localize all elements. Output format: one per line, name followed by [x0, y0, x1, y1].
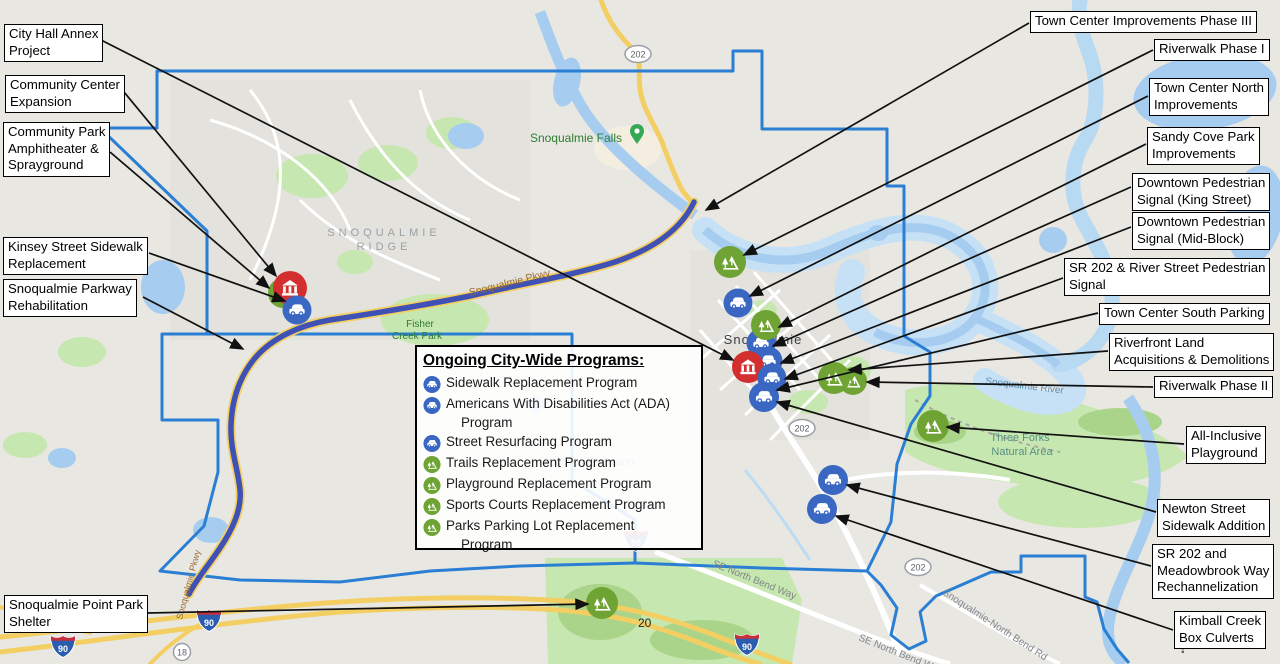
route-202-shield-south: 202: [905, 559, 931, 576]
legend-item-line: Playground Replacement Program: [446, 475, 651, 494]
ridge-label-line2: RIDGE: [357, 241, 412, 253]
playground-icon: [423, 518, 441, 537]
callout-line: SR 202 and: [1157, 546, 1269, 563]
callout-line: All-Inclusive: [1191, 428, 1261, 445]
callout-line: Project: [9, 43, 98, 60]
legend-item-line: Trails Replacement Program: [446, 454, 616, 473]
callout-community-center-expansion: Community CenterExpansion: [5, 75, 125, 113]
callout-line: Town Center Improvements Phase III: [1035, 13, 1252, 30]
i90-text: 90: [204, 618, 214, 628]
callout-kimball-creek-box-culverts: Kimball CreekBox Culverts: [1174, 611, 1266, 649]
marker-sr202-meadowbrook: [818, 465, 848, 495]
urban-area-ridge: [170, 80, 530, 340]
legend-item-label: Street Resurfacing Program: [446, 433, 612, 452]
milepost-20-label: 20: [638, 616, 652, 630]
legend-item-label: Parks Parking Lot ReplacementProgram: [446, 517, 634, 554]
callout-line: Riverwalk Phase I: [1159, 41, 1265, 58]
playground-icon: [423, 497, 441, 516]
callout-line: Rehabilitation: [8, 298, 132, 315]
callout-line: Improvements: [1152, 146, 1255, 163]
legend-item-label: Americans With Disabilities Act (ADA)Pro…: [446, 395, 670, 432]
callout-all-inclusive-playground: All-InclusivePlayground: [1186, 426, 1266, 464]
map-canvas: SNOQUALMIE RIDGE Snoqualmie Falls Fisher…: [0, 0, 1280, 664]
car-icon: [423, 375, 441, 394]
three-forks-label-line2: Natural Area: [991, 446, 1053, 458]
legend-item-line: Sidewalk Replacement Program: [446, 374, 637, 393]
callout-line: Replacement: [8, 256, 143, 273]
callout-line: Kinsey Street Sidewalk: [8, 239, 143, 256]
callout-snoqualmie-parkway-rehab: Snoqualmie ParkwayRehabilitation: [3, 279, 137, 317]
callout-line: Playground: [1191, 445, 1261, 462]
route-202-text: 202: [794, 424, 809, 434]
legend-item-label: Sports Courts Replacement Program: [446, 496, 666, 515]
callout-snoqualmie-point-park-shelter: Snoqualmie Point ParkShelter: [4, 595, 148, 633]
legend-item: Trails Replacement Program: [423, 454, 695, 474]
callout-line: Snoqualmie Parkway: [8, 281, 132, 298]
falls-label: Snoqualmie Falls: [530, 131, 622, 145]
marker-town-center-north: [724, 289, 753, 318]
callout-line: Sprayground: [8, 157, 105, 174]
callout-downtown-pedestrian-signal-king-street: Downtown PedestrianSignal (King Street): [1132, 173, 1270, 211]
callout-line: Town Center South Parking: [1104, 305, 1265, 322]
ridge-label-line1: SNOQUALMIE: [327, 227, 440, 239]
callout-town-center-north-improvements: Town Center NorthImprovements: [1149, 78, 1269, 116]
legend-item-line: Program: [446, 536, 634, 555]
callout-line: Expansion: [10, 94, 120, 111]
marker-kinsey-street-sidewalk: [283, 296, 312, 325]
callout-town-center-south-parking: Town Center South Parking: [1099, 303, 1270, 325]
playground-icon: [423, 476, 441, 495]
route-202-text: 202: [910, 563, 925, 573]
capital-projects-map-page: { "legend": { "title": "Ongoing City-Wid…: [0, 0, 1280, 664]
callout-line: Signal (Mid-Block): [1137, 231, 1265, 248]
callout-riverfront-land-acquisitions: Riverfront LandAcquisitions & Demolition…: [1109, 333, 1274, 371]
callout-line: Community Park: [8, 124, 105, 141]
callout-kinsey-street-sidewalk: Kinsey Street SidewalkReplacement: [3, 237, 148, 275]
legend-item-label: Playground Replacement Program: [446, 475, 651, 494]
marker-riverfront-land-acquisitions: [818, 362, 850, 394]
legend-item: Parks Parking Lot ReplacementProgram: [423, 517, 695, 554]
route-202-text: 202: [630, 50, 645, 60]
callout-line: Downtown Pedestrian: [1137, 175, 1265, 192]
legend-item: Street Resurfacing Program: [423, 433, 695, 453]
callout-line: Sidewalk Addition: [1162, 518, 1265, 535]
callout-line: SR 202 & River Street Pedestrian: [1069, 260, 1265, 277]
callout-line: Amphitheater &: [8, 141, 105, 158]
callout-town-center-improvements-phase-3: Town Center Improvements Phase III: [1030, 11, 1257, 33]
marker-riverwalk-phase-1: [714, 246, 746, 278]
callout-line: Community Center: [10, 77, 120, 94]
callout-line: City Hall Annex: [9, 26, 98, 43]
legend-item-line: Americans With Disabilities Act (ADA): [446, 395, 670, 414]
fisher-park-label-line2: Creek Park: [392, 331, 443, 342]
marker-sandy-cove-park: [751, 310, 781, 340]
route-202-shield-mid: 202: [789, 420, 815, 437]
callout-community-park-amphitheater: Community ParkAmphitheater &Sprayground: [3, 122, 110, 177]
callout-newton-street-sidewalk-addition: Newton StreetSidewalk Addition: [1157, 499, 1270, 537]
marker-kimball-creek: [807, 494, 837, 524]
callout-sandy-cove-park-improvements: Sandy Cove ParkImprovements: [1147, 127, 1260, 165]
i90-text: 90: [58, 644, 68, 654]
legend-item: Playground Replacement Program: [423, 475, 695, 495]
legend-panel: Ongoing City-Wide Programs: Sidewalk Rep…: [415, 345, 703, 550]
callout-riverwalk-phase-1: Riverwalk Phase I: [1154, 39, 1270, 61]
callout-line: Riverfront Land: [1114, 335, 1269, 352]
callout-line: Improvements: [1154, 97, 1264, 114]
callout-line: Rechannelization: [1157, 579, 1269, 596]
marker-town-center-south-parking: [749, 382, 779, 412]
legend-item-line: Parks Parking Lot Replacement: [446, 517, 634, 536]
callout-line: Downtown Pedestrian: [1137, 214, 1265, 231]
callout-line: Sandy Cove Park: [1152, 129, 1255, 146]
marker-snoqualmie-point-park: [586, 587, 618, 619]
route-18-text: 18: [177, 648, 187, 658]
legend-item: Sports Courts Replacement Program: [423, 496, 695, 516]
fisher-park-label-line1: Fisher: [406, 319, 434, 330]
callout-line: Kimball Creek: [1179, 613, 1261, 630]
callout-line: Riverwalk Phase II: [1159, 378, 1268, 395]
legend-item-line: Program: [446, 414, 670, 433]
route-18-shield: 18: [174, 644, 191, 661]
marker-all-inclusive-playground: [917, 410, 949, 442]
callout-line: Meadowbrook Way: [1157, 563, 1269, 580]
i90-text: 90: [742, 642, 752, 652]
legend-item: Americans With Disabilities Act (ADA)Pro…: [423, 395, 695, 432]
callout-line: Town Center North: [1154, 80, 1264, 97]
callout-downtown-pedestrian-signal-mid-block: Downtown PedestrianSignal (Mid-Block): [1132, 212, 1270, 250]
legend-item-line: Street Resurfacing Program: [446, 433, 612, 452]
playground-icon: [423, 455, 441, 474]
car-icon: [423, 396, 441, 415]
callout-riverwalk-phase-2: Riverwalk Phase II: [1154, 376, 1273, 398]
legend-item-label: Sidewalk Replacement Program: [446, 374, 637, 393]
car-icon: [423, 434, 441, 453]
callout-line: Shelter: [9, 614, 143, 631]
legend-title: Ongoing City-Wide Programs:: [423, 352, 695, 370]
legend-item-line: Sports Courts Replacement Program: [446, 496, 666, 515]
callout-city-hall-annex: City Hall AnnexProject: [4, 24, 103, 62]
callout-line: Box Culverts: [1179, 630, 1261, 647]
route-202-shield-north: 202: [625, 46, 651, 63]
legend-item: Sidewalk Replacement Program: [423, 374, 695, 394]
callout-line: Acquisitions & Demolitions: [1114, 352, 1269, 369]
callout-sr202-meadowbrook-way-rechannelization: SR 202 andMeadowbrook WayRechannelizatio…: [1152, 544, 1274, 599]
legend-item-label: Trails Replacement Program: [446, 454, 616, 473]
callout-line: Newton Street: [1162, 501, 1265, 518]
callout-line: Signal (King Street): [1137, 192, 1265, 209]
callout-sr202-river-street-pedestrian-signal: SR 202 & River Street PedestrianSignal: [1064, 258, 1270, 296]
callout-line: Signal: [1069, 277, 1265, 294]
callout-line: Snoqualmie Point Park: [9, 597, 143, 614]
